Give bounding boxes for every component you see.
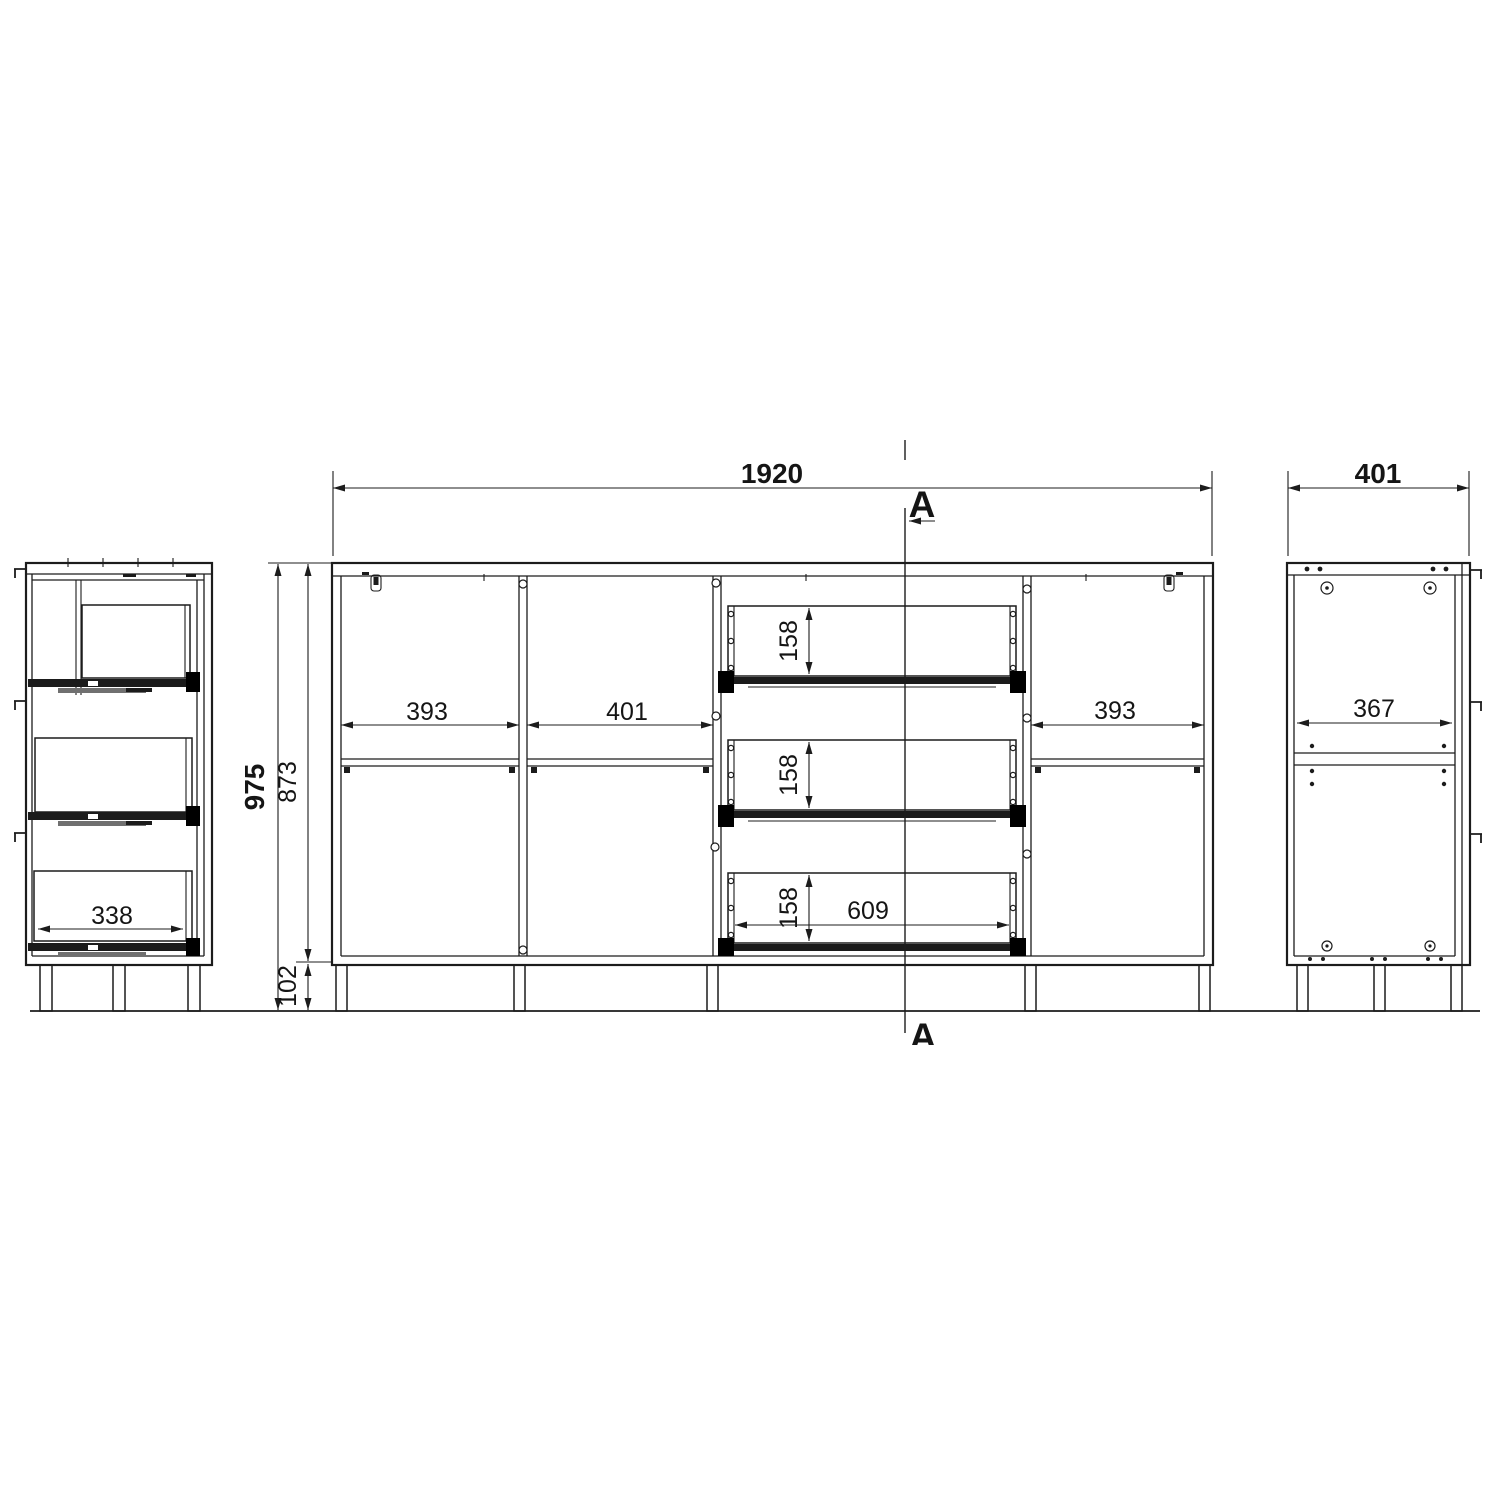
dim-102-label: 102	[274, 965, 302, 1007]
drawer-front-1	[718, 606, 1026, 693]
dim-401-side-label: 401	[1355, 458, 1402, 489]
hinge-icon-right	[1164, 572, 1183, 591]
side-dimensions: 401 367	[1288, 458, 1469, 723]
dim-338-label: 338	[91, 902, 133, 930]
legs-front-view	[336, 965, 1210, 1011]
section-mark-top: A	[909, 484, 936, 525]
top-screws	[1305, 567, 1449, 594]
dim-158-3-label: 158	[775, 887, 803, 929]
front-view	[332, 563, 1213, 1011]
furniture-technical-drawing: 338 975 873 102	[0, 0, 1500, 1500]
dim-393-left-label: 393	[406, 698, 448, 726]
legs-section-view	[40, 965, 200, 1011]
back-hooks	[14, 569, 26, 842]
back-hooks-side	[1470, 570, 1482, 843]
side-view: 401 367	[1287, 458, 1482, 1011]
vertical-dimensions: 975 873 102	[239, 563, 332, 1010]
dim-158-2-label: 158	[775, 754, 803, 796]
dimension-drawer-depth: 338	[38, 902, 183, 930]
drawer-side-1	[28, 605, 200, 693]
drawing-canvas: 338 975 873 102	[0, 0, 1500, 1500]
dim-393-right-label: 393	[1094, 697, 1136, 725]
dim-873-label: 873	[274, 761, 302, 803]
section-view-a-a: 338	[14, 558, 212, 1011]
legs-side-view	[1297, 965, 1462, 1011]
dim-975-label: 975	[239, 764, 270, 811]
dim-1920-label: 1920	[741, 458, 803, 489]
hinge-icon-left	[362, 572, 381, 591]
bottom-screws	[1308, 941, 1443, 961]
dim-401-bay-label: 401	[606, 698, 648, 726]
shelf-lines	[341, 759, 1204, 773]
drawer-front-2	[718, 740, 1026, 827]
dim-609-label: 609	[847, 897, 889, 925]
section-mark-bottom: A	[910, 1016, 937, 1057]
front-dimensions: 1920 393 401 393 158 158 158 609	[333, 458, 1212, 941]
drawer-side-2	[28, 738, 200, 826]
dim-158-1-label: 158	[775, 620, 803, 662]
dim-367-label: 367	[1353, 695, 1395, 723]
